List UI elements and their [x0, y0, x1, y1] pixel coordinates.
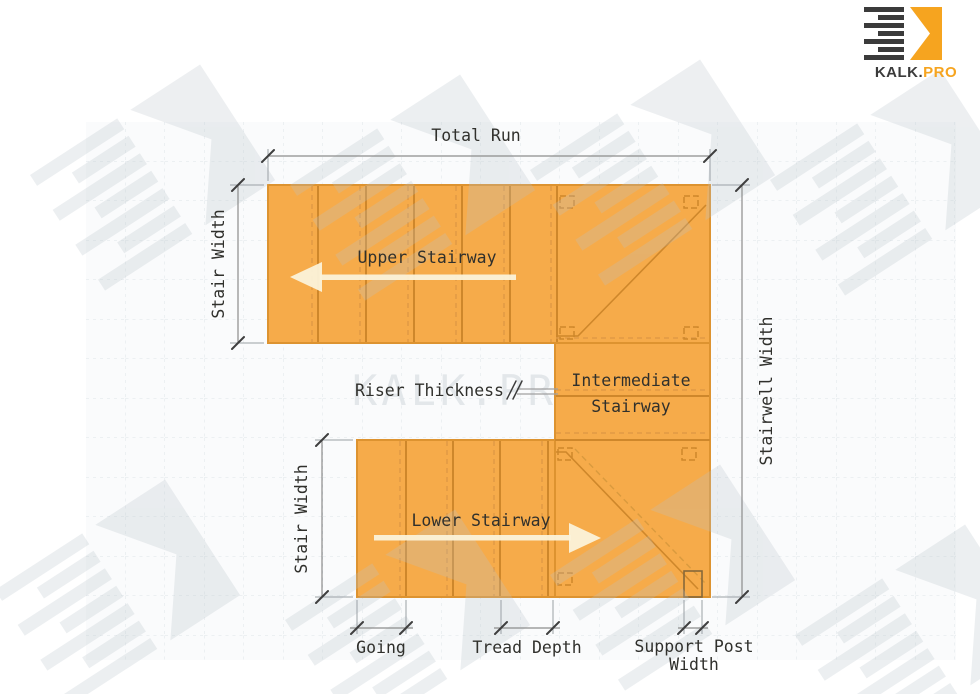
tread-depth-label: Tread Depth [472, 638, 581, 657]
logo-chevron-icon [910, 7, 942, 60]
riser-thickness-label: Riser Thickness [355, 381, 504, 400]
logo-wordmark-accent: PRO [923, 64, 957, 81]
logo-wordmark-dark: KALK. [875, 64, 923, 81]
stairwell-width-label: Stairwell Width [757, 316, 776, 465]
lower-stairway-label: Lower Stairway [411, 511, 550, 530]
intermediate-stairway-label-line1: Intermediate [571, 371, 690, 390]
going-label: Going [356, 638, 406, 657]
support-post-width-label-line1: Support Post [634, 637, 753, 656]
logo-bars-icon [864, 7, 904, 60]
stair-width-lower-label: Stair Width [292, 464, 311, 573]
stair-plan-diagram: KALK.PRO Upper Stairway Lower Stairway I… [0, 0, 980, 694]
kalkpro-logo-icon [864, 6, 942, 62]
stair-width-upper-label: Stair Width [209, 209, 228, 318]
support-post-width-label-line2: Width [669, 655, 719, 674]
total-run-label: Total Run [431, 126, 520, 145]
upper-stairway-label: Upper Stairway [357, 248, 496, 267]
intermediate-stairway-label-line2: Stairway [591, 397, 671, 416]
logo-wordmark: KALK.PRO [864, 64, 968, 81]
stair-plan-page: KALK.PRO Upper Stairway Lower Stairway I… [0, 0, 980, 694]
kalkpro-logo[interactable]: KALK.PRO [864, 6, 968, 81]
